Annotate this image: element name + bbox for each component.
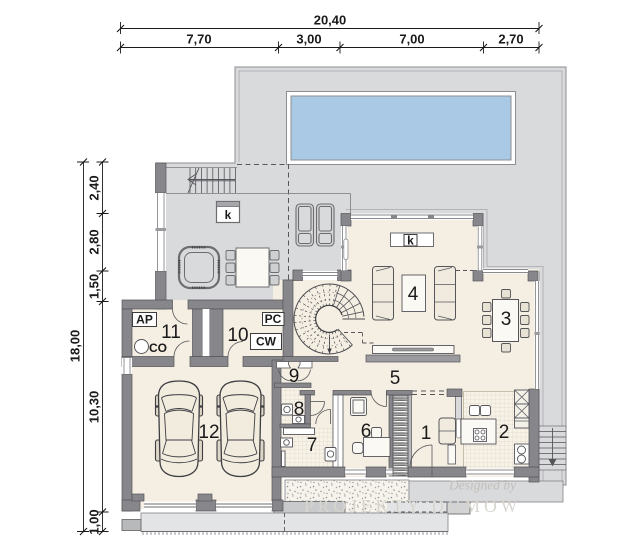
svg-text:7: 7 (307, 435, 318, 456)
svg-text:2,70: 2,70 (498, 32, 523, 47)
svg-text:5: 5 (390, 368, 401, 389)
svg-text:1,00: 1,00 (87, 509, 102, 534)
svg-text:2,40: 2,40 (87, 175, 102, 200)
svg-text:AP: AP (136, 313, 153, 327)
svg-text:10: 10 (227, 325, 248, 346)
svg-text:PC: PC (265, 312, 282, 326)
svg-text:2: 2 (499, 422, 510, 443)
svg-text:18,00: 18,00 (68, 330, 83, 363)
svg-text:CW: CW (256, 335, 277, 349)
svg-text:k: k (407, 234, 414, 248)
svg-text:7,00: 7,00 (399, 32, 424, 47)
svg-text:12: 12 (198, 422, 219, 443)
svg-text:3,00: 3,00 (296, 32, 321, 47)
svg-text:8: 8 (294, 399, 305, 420)
svg-text:1: 1 (421, 423, 432, 444)
svg-text:6: 6 (361, 421, 372, 442)
svg-text:1,50: 1,50 (87, 274, 102, 299)
svg-text:10,30: 10,30 (87, 391, 102, 424)
svg-text:2,80: 2,80 (87, 229, 102, 254)
svg-text:9: 9 (289, 366, 300, 387)
svg-text:11: 11 (161, 322, 181, 343)
svg-text:Designed by: Designed by (448, 478, 516, 493)
svg-text:3: 3 (501, 309, 512, 330)
svg-text:PROJEKTY DOMOW: PROJEKTY DOMOW (304, 496, 521, 516)
svg-text:7,70: 7,70 (186, 32, 211, 47)
svg-text:4: 4 (408, 284, 419, 305)
svg-text:CO: CO (149, 341, 167, 355)
svg-text:20,40: 20,40 (314, 13, 347, 28)
svg-text:k: k (225, 208, 232, 222)
